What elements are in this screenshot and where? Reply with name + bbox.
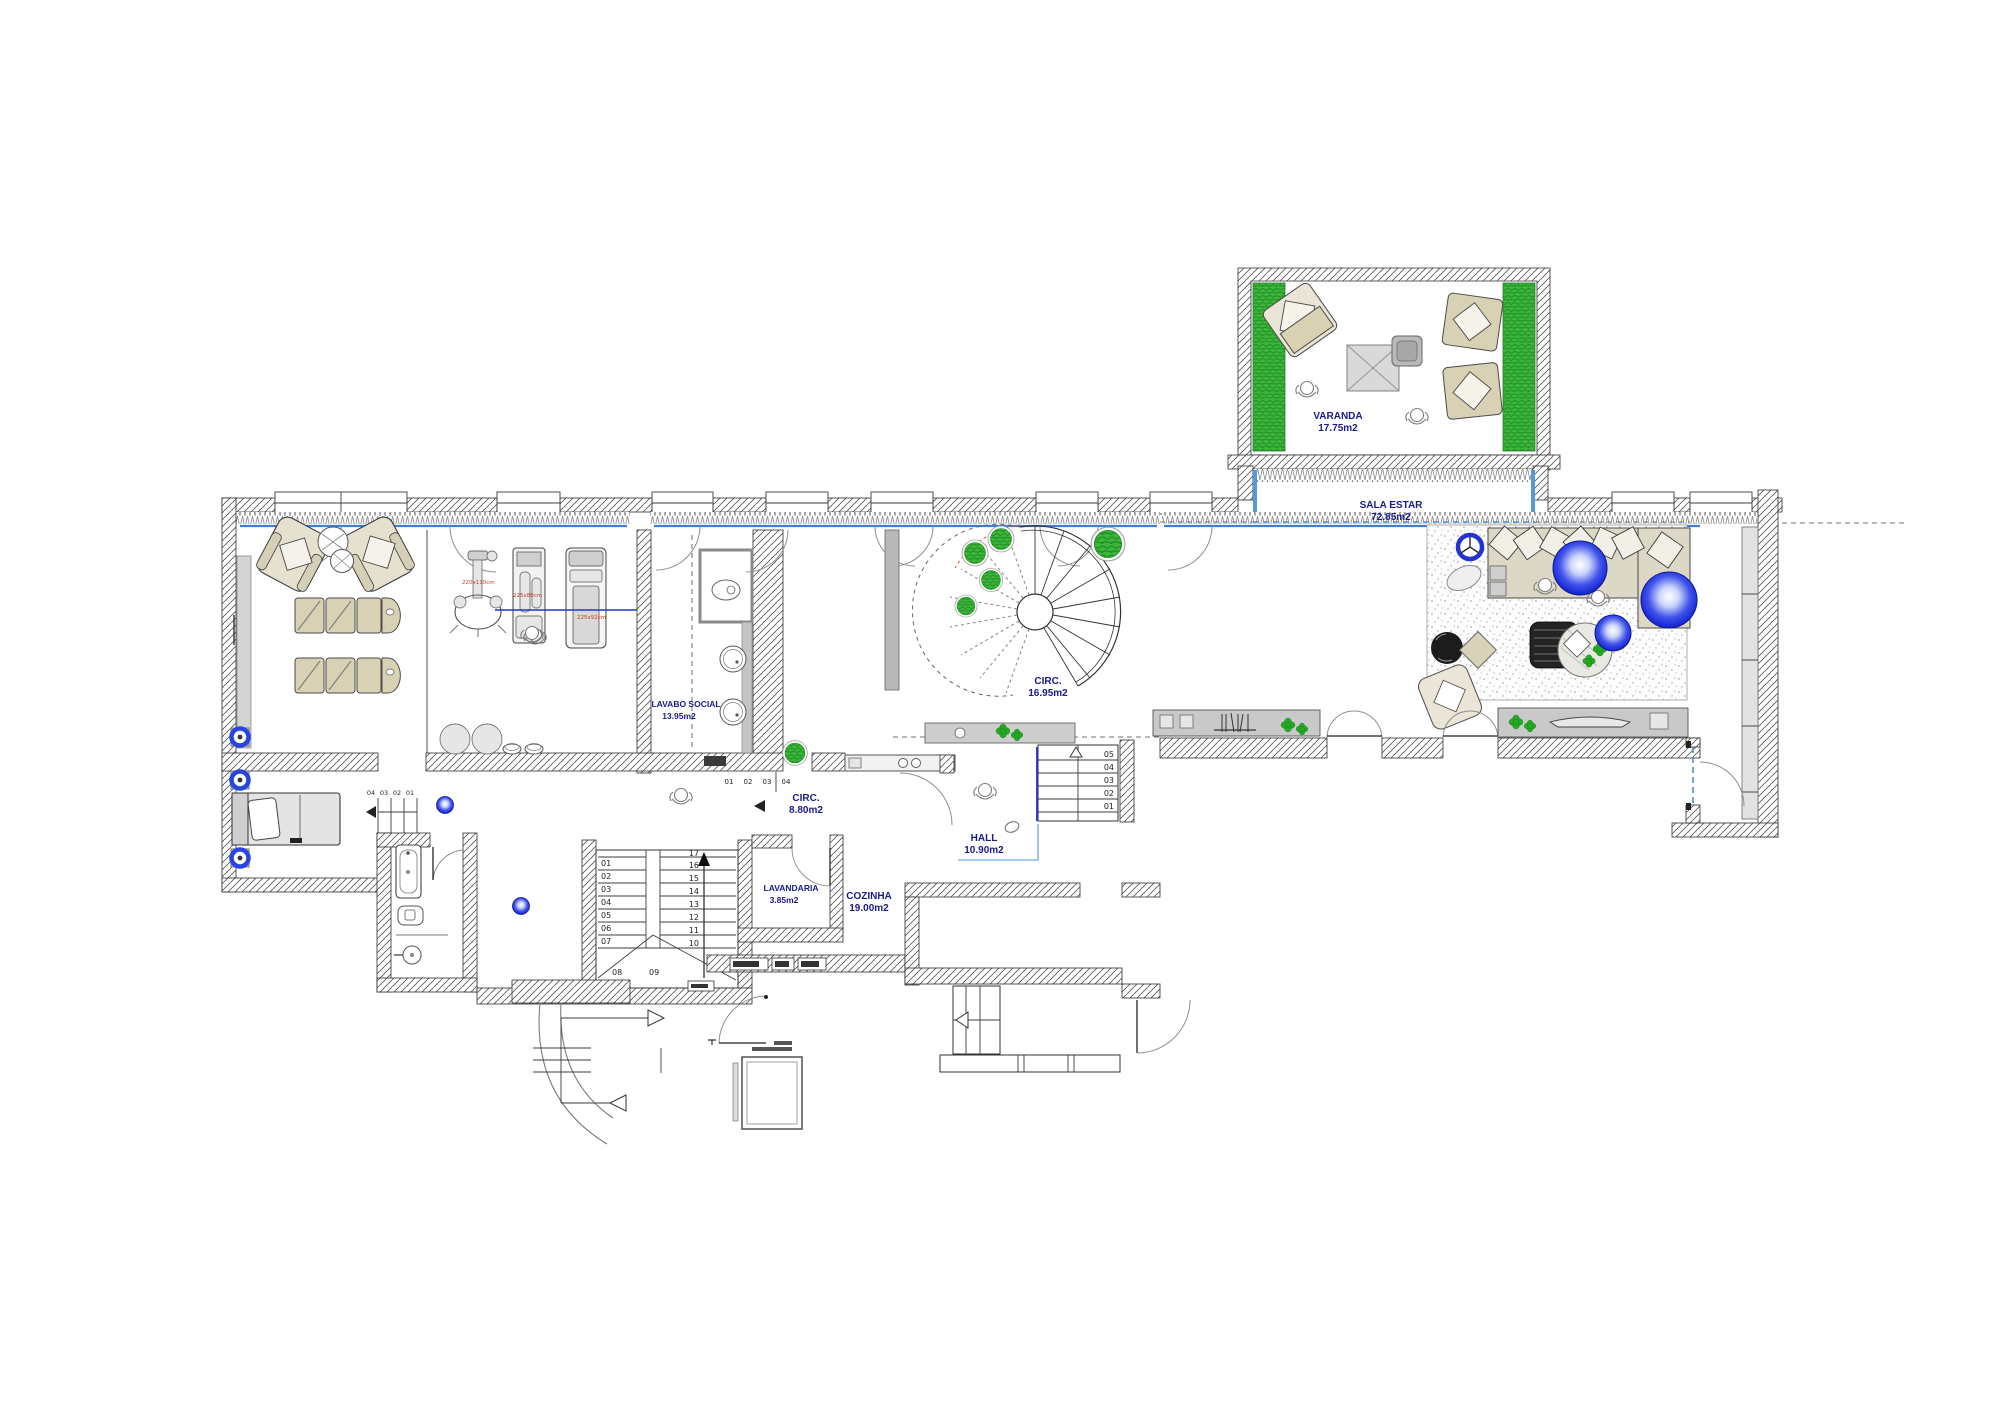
tread-number: 13: [689, 900, 699, 909]
room-area-sala-estar: 72.85m2: [1371, 512, 1411, 523]
vanity-counter: [742, 622, 752, 753]
room-area-varanda: 17.75m2: [1318, 423, 1358, 434]
treadmill: [566, 548, 606, 648]
sideboard-left: [1153, 710, 1320, 736]
tread-number: 05: [1104, 750, 1114, 759]
plant: [783, 741, 808, 766]
exterior-stairs: [940, 986, 1120, 1072]
wall-cabinet: [237, 556, 251, 748]
sink: [720, 699, 746, 725]
tread-number: 09: [649, 968, 659, 977]
plant: [1091, 527, 1125, 561]
equipment-dimension: 220x110cm: [462, 580, 495, 586]
step-number: 02: [393, 789, 401, 797]
veranda: VARANDA 17.75m2: [1228, 268, 1560, 522]
tread-number: 01: [1104, 802, 1114, 811]
room-label-circ-lower: CIRC.: [792, 793, 819, 804]
lavandaria: LAVANDARIA 3.85m2: [738, 835, 843, 942]
hall: HALL 10.90m2 05 04 03 02 01: [905, 723, 1190, 1072]
tread-number: 03: [1104, 776, 1114, 785]
tall-cabinet: [1742, 527, 1758, 819]
lavabo-social: LAVABO SOCIAL 13.95m2: [651, 530, 807, 765]
tread-number: 08: [612, 968, 622, 977]
ring-light: [232, 729, 249, 746]
wall-sink: [394, 946, 421, 964]
hedge-right: [1503, 283, 1535, 451]
tread-number: 04: [601, 898, 611, 907]
pilaster: [885, 530, 899, 690]
direction-arrow-left: [610, 1095, 626, 1111]
tread-number: 01: [601, 859, 611, 868]
room-area-lavandaria: 3.85m2: [770, 895, 799, 905]
tread-number: 17: [689, 849, 699, 858]
room-label-varanda: VARANDA: [1313, 411, 1362, 422]
label-plate: [688, 981, 714, 991]
direction-arrow: [366, 806, 376, 818]
room-label-cozinha: COZINHA: [846, 891, 892, 902]
room-area-circ-lower: 8.80m2: [789, 805, 823, 816]
room-area-cozinha: 19.00m2: [849, 903, 889, 914]
tread-number: 14: [689, 887, 699, 896]
plant: [988, 526, 1014, 552]
massage-table-row-2: [295, 658, 400, 693]
circulation-hall: CIRC. 16.95m2: [885, 524, 1160, 737]
blue-sphere-small: [437, 797, 454, 814]
tread-number: 02: [601, 872, 611, 881]
hall-stairs: 05 04 03 02 01: [1037, 745, 1118, 821]
veranda-lounge-chair-2: [1442, 292, 1504, 351]
lounge-room: [231, 514, 417, 746]
tread-number: 05: [601, 911, 611, 920]
room-area-hall: 10.90m2: [964, 845, 1004, 856]
step-number: 01: [406, 789, 414, 797]
room-label-lavandaria: LAVANDARIA: [764, 883, 819, 893]
room-area-circ-main: 16.95m2: [1028, 688, 1068, 699]
door-mat: [733, 1041, 802, 1129]
blue-sphere-large: [1641, 572, 1697, 628]
tread-number: 01: [725, 778, 734, 786]
tread-number: 03: [763, 778, 772, 786]
tread-number: 11: [689, 926, 699, 935]
exercise-bike: [450, 551, 506, 637]
direction-arrow-right: [648, 1010, 664, 1026]
plant: [955, 595, 977, 617]
veranda-table: [1347, 336, 1422, 391]
tread-number: 06: [601, 924, 611, 933]
person-figure: [974, 784, 996, 800]
bedroom-steps: 04 03 02 01: [366, 789, 417, 835]
pillow: [248, 797, 281, 840]
tread-number: 07: [601, 937, 611, 946]
tread-number: 12: [689, 913, 699, 922]
exercise-ball: [472, 724, 502, 754]
small-plate: [704, 756, 726, 766]
sala-south-wall: [1153, 708, 1700, 758]
utility-meter-boxes: [730, 958, 826, 970]
equipment-dimension: 225x80cm: [513, 593, 542, 599]
step-number: 04: [367, 789, 375, 797]
step-number: 03: [380, 789, 388, 797]
equipment-dimension: 225x92cm: [577, 615, 606, 621]
tread-number: 04: [782, 778, 791, 786]
toilet-stall: [700, 550, 752, 622]
room-label-hall: HALL: [971, 833, 998, 844]
tread-number: 10: [689, 939, 699, 948]
bed: [232, 793, 340, 845]
veranda-insulation: [1247, 469, 1537, 482]
room-label-lavabo: LAVABO SOCIAL: [651, 699, 720, 709]
ceiling-fan: [1458, 535, 1482, 559]
room-label-circ-main: CIRC.: [1034, 676, 1061, 687]
blue-sphere-large: [1553, 541, 1607, 595]
sink: [720, 646, 746, 672]
person-figure: [1296, 382, 1318, 398]
side-door: [1122, 984, 1190, 1053]
floor-plan-canvas: VARANDA 17.75m2 SALA ESTAR 72.85m2: [0, 0, 2000, 1414]
veranda-bottom-wall: [1228, 455, 1560, 469]
kitchen-counter: [845, 755, 955, 771]
bowls: [503, 744, 543, 755]
dark-pouf: [1431, 632, 1463, 664]
tv-console: [1498, 708, 1688, 737]
veranda-connector-left: [1238, 466, 1253, 500]
toilet: [398, 906, 423, 925]
tread-number: 04: [1104, 763, 1114, 772]
direction-arrow: [754, 800, 765, 812]
tread-number: 15: [689, 874, 699, 883]
room-label-sala-estar: SALA ESTAR: [1360, 500, 1424, 511]
plant: [962, 540, 988, 566]
exercise-ball: [440, 724, 470, 754]
spiral-staircase: [912, 524, 1120, 696]
tread-number: 03: [601, 885, 611, 894]
person-figure: [670, 789, 692, 805]
tread-number: 02: [744, 778, 753, 786]
bathroom: [377, 833, 477, 992]
veranda-lounge-chair-3: [1442, 362, 1502, 419]
person-figure: [1406, 409, 1428, 425]
veranda-connector-right: [1533, 466, 1548, 500]
ring-light: [232, 772, 249, 789]
gym-room: 220x110cm 225x80cm 225x92cm: [440, 548, 637, 754]
bathtub: [396, 845, 421, 898]
tread-number: 16: [689, 861, 699, 870]
tread-number: 02: [1104, 789, 1114, 798]
blue-sphere-medium: [1595, 615, 1631, 651]
plant: [979, 568, 1002, 591]
room-area-lavabo: 13.95m2: [662, 711, 696, 721]
massage-table-row-1: [295, 598, 400, 633]
floor-plan-drawing: VARANDA 17.75m2 SALA ESTAR 72.85m2: [0, 0, 2000, 1414]
blue-sphere-small: [513, 898, 530, 915]
entry-path: [512, 980, 802, 1144]
ring-light: [232, 850, 249, 867]
